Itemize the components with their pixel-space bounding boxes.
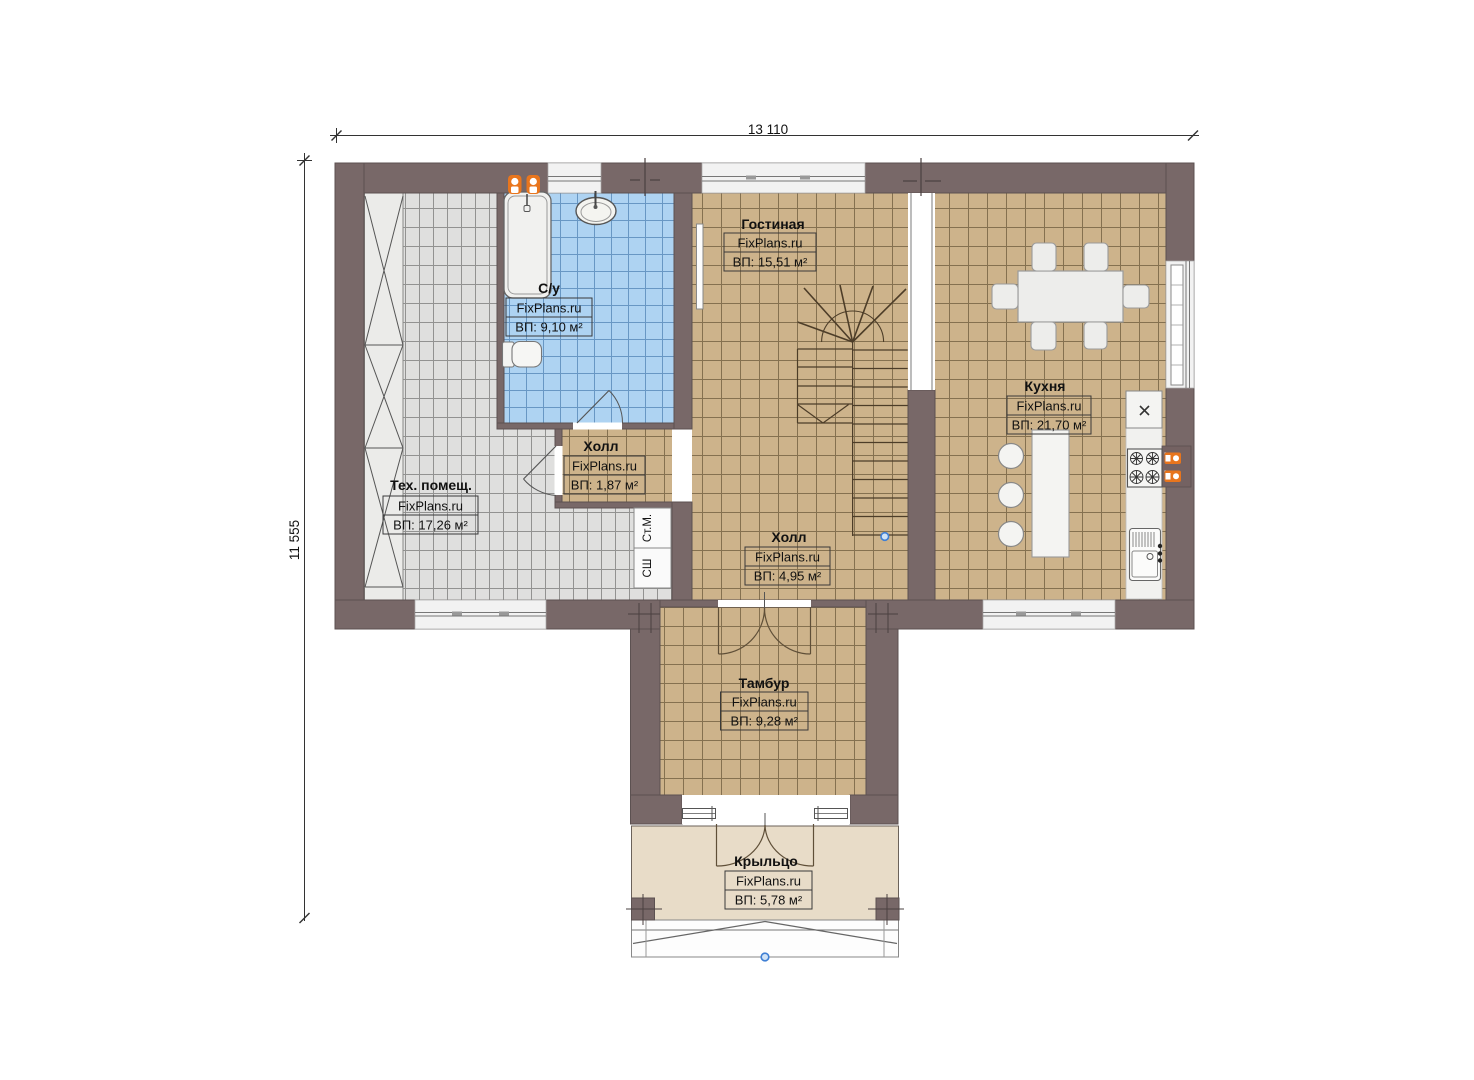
svg-text:FixPlans.ru: FixPlans.ru bbox=[755, 550, 820, 565]
svg-text:ВП: 17,26 м²: ВП: 17,26 м² bbox=[393, 518, 468, 533]
svg-text:ВП: 21,70 м²: ВП: 21,70 м² bbox=[1012, 418, 1087, 433]
svg-text:С/у: С/у bbox=[538, 280, 560, 296]
svg-text:ВП: 15,51 м²: ВП: 15,51 м² bbox=[733, 255, 808, 270]
svg-text:ВП: 9,10 м²: ВП: 9,10 м² bbox=[515, 320, 583, 335]
svg-text:Холл: Холл bbox=[771, 529, 806, 545]
svg-text:Тех. помещ.: Тех. помещ. bbox=[390, 477, 472, 493]
svg-text:Холл: Холл bbox=[583, 438, 618, 454]
svg-text:Ст.М.: Ст.М. bbox=[642, 514, 654, 542]
svg-text:Гостиная: Гостиная bbox=[741, 216, 804, 232]
svg-text:Тамбур: Тамбур bbox=[739, 675, 790, 691]
svg-text:ВП: 4,95 м²: ВП: 4,95 м² bbox=[754, 569, 822, 584]
svg-text:ВП: 9,28 м²: ВП: 9,28 м² bbox=[731, 714, 799, 729]
svg-text:ВП: 1,87 м²: ВП: 1,87 м² bbox=[571, 478, 639, 493]
svg-text:FixPlans.ru: FixPlans.ru bbox=[732, 695, 797, 710]
svg-text:FixPlans.ru: FixPlans.ru bbox=[572, 459, 637, 474]
svg-text:FixPlans.ru: FixPlans.ru bbox=[398, 499, 463, 514]
svg-text:11 555: 11 555 bbox=[287, 520, 302, 560]
svg-text:FixPlans.ru: FixPlans.ru bbox=[516, 301, 581, 316]
svg-text:ВП: 5,78 м²: ВП: 5,78 м² bbox=[735, 893, 803, 908]
svg-text:FixPlans.ru: FixPlans.ru bbox=[1016, 399, 1081, 414]
svg-text:Кухня: Кухня bbox=[1025, 378, 1066, 394]
svg-text:FixPlans.ru: FixPlans.ru bbox=[736, 874, 801, 889]
svg-text:13 110: 13 110 bbox=[748, 122, 788, 137]
svg-text:СШ: СШ bbox=[642, 559, 654, 578]
svg-text:Крыльцо: Крыльцо bbox=[734, 853, 798, 869]
svg-text:FixPlans.ru: FixPlans.ru bbox=[737, 236, 802, 251]
